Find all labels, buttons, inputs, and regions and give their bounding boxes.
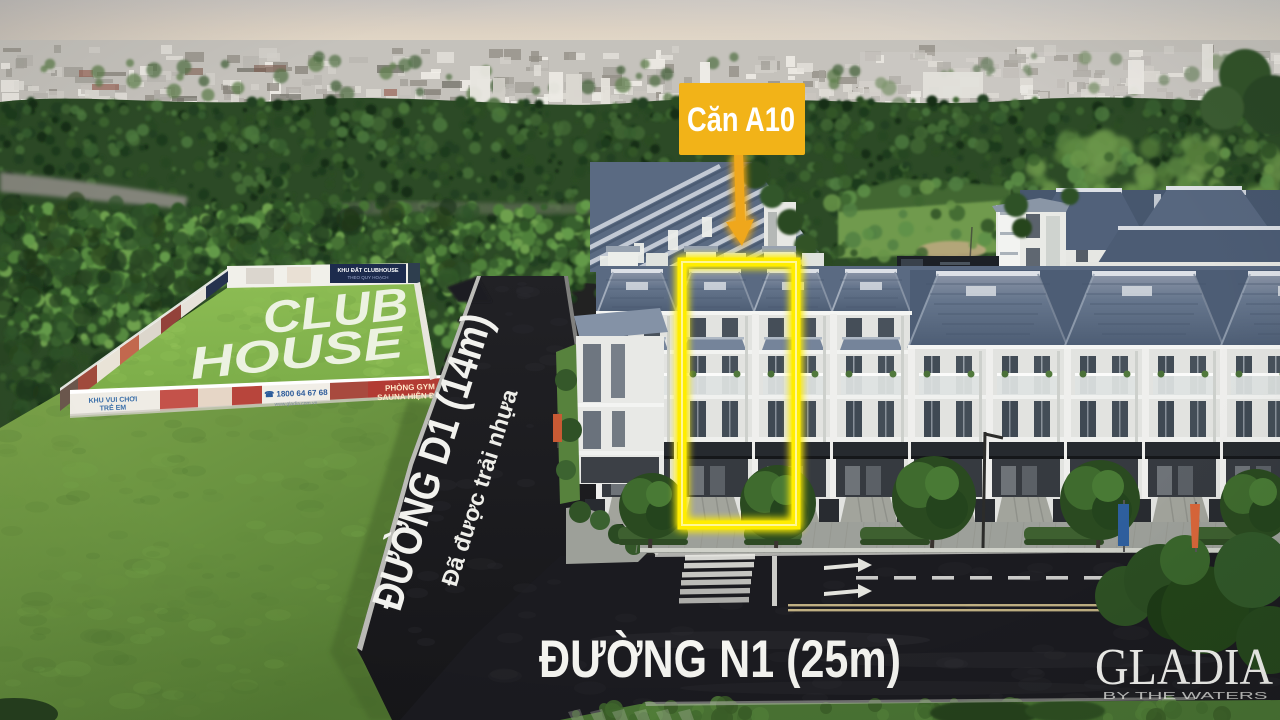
svg-text:KHU ĐẤT CLUBHOUSE: KHU ĐẤT CLUBHOUSE bbox=[337, 267, 398, 274]
svg-text:THEO QUY HOẠCH: THEO QUY HOẠCH bbox=[348, 275, 389, 280]
